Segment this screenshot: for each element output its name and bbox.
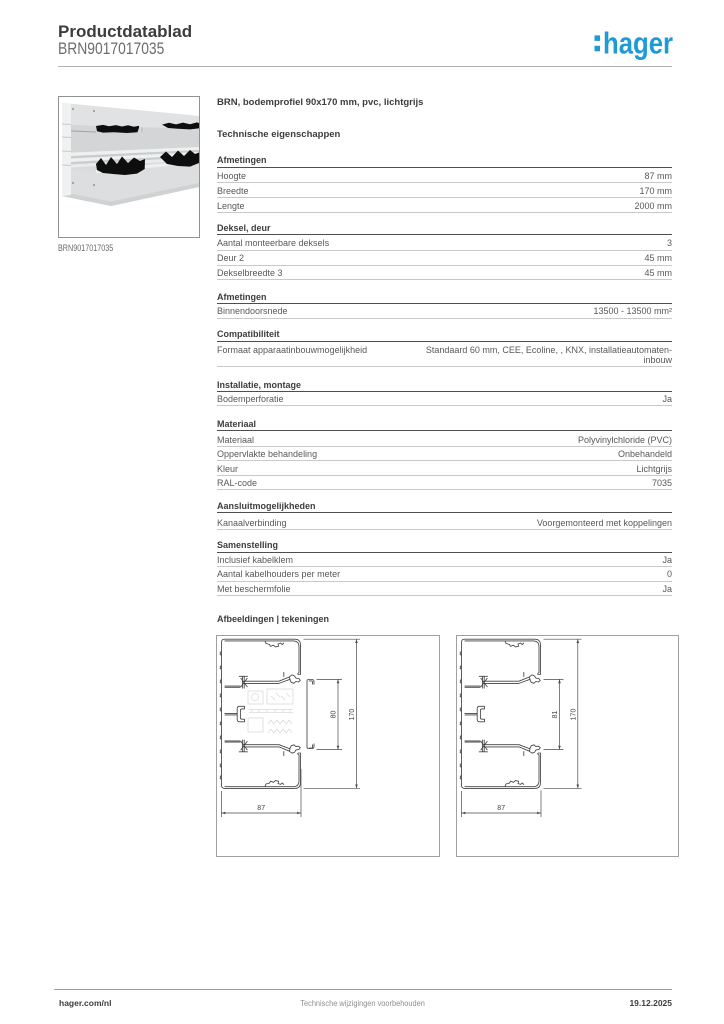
svg-text:87: 87 <box>497 805 505 812</box>
svg-text:87: 87 <box>257 805 265 812</box>
svg-text:hager: hager <box>603 28 673 60</box>
svg-text:170: 170 <box>349 709 356 721</box>
svg-text:170: 170 <box>571 709 578 721</box>
svg-text:81: 81 <box>552 711 559 719</box>
svg-text:80: 80 <box>331 711 338 719</box>
